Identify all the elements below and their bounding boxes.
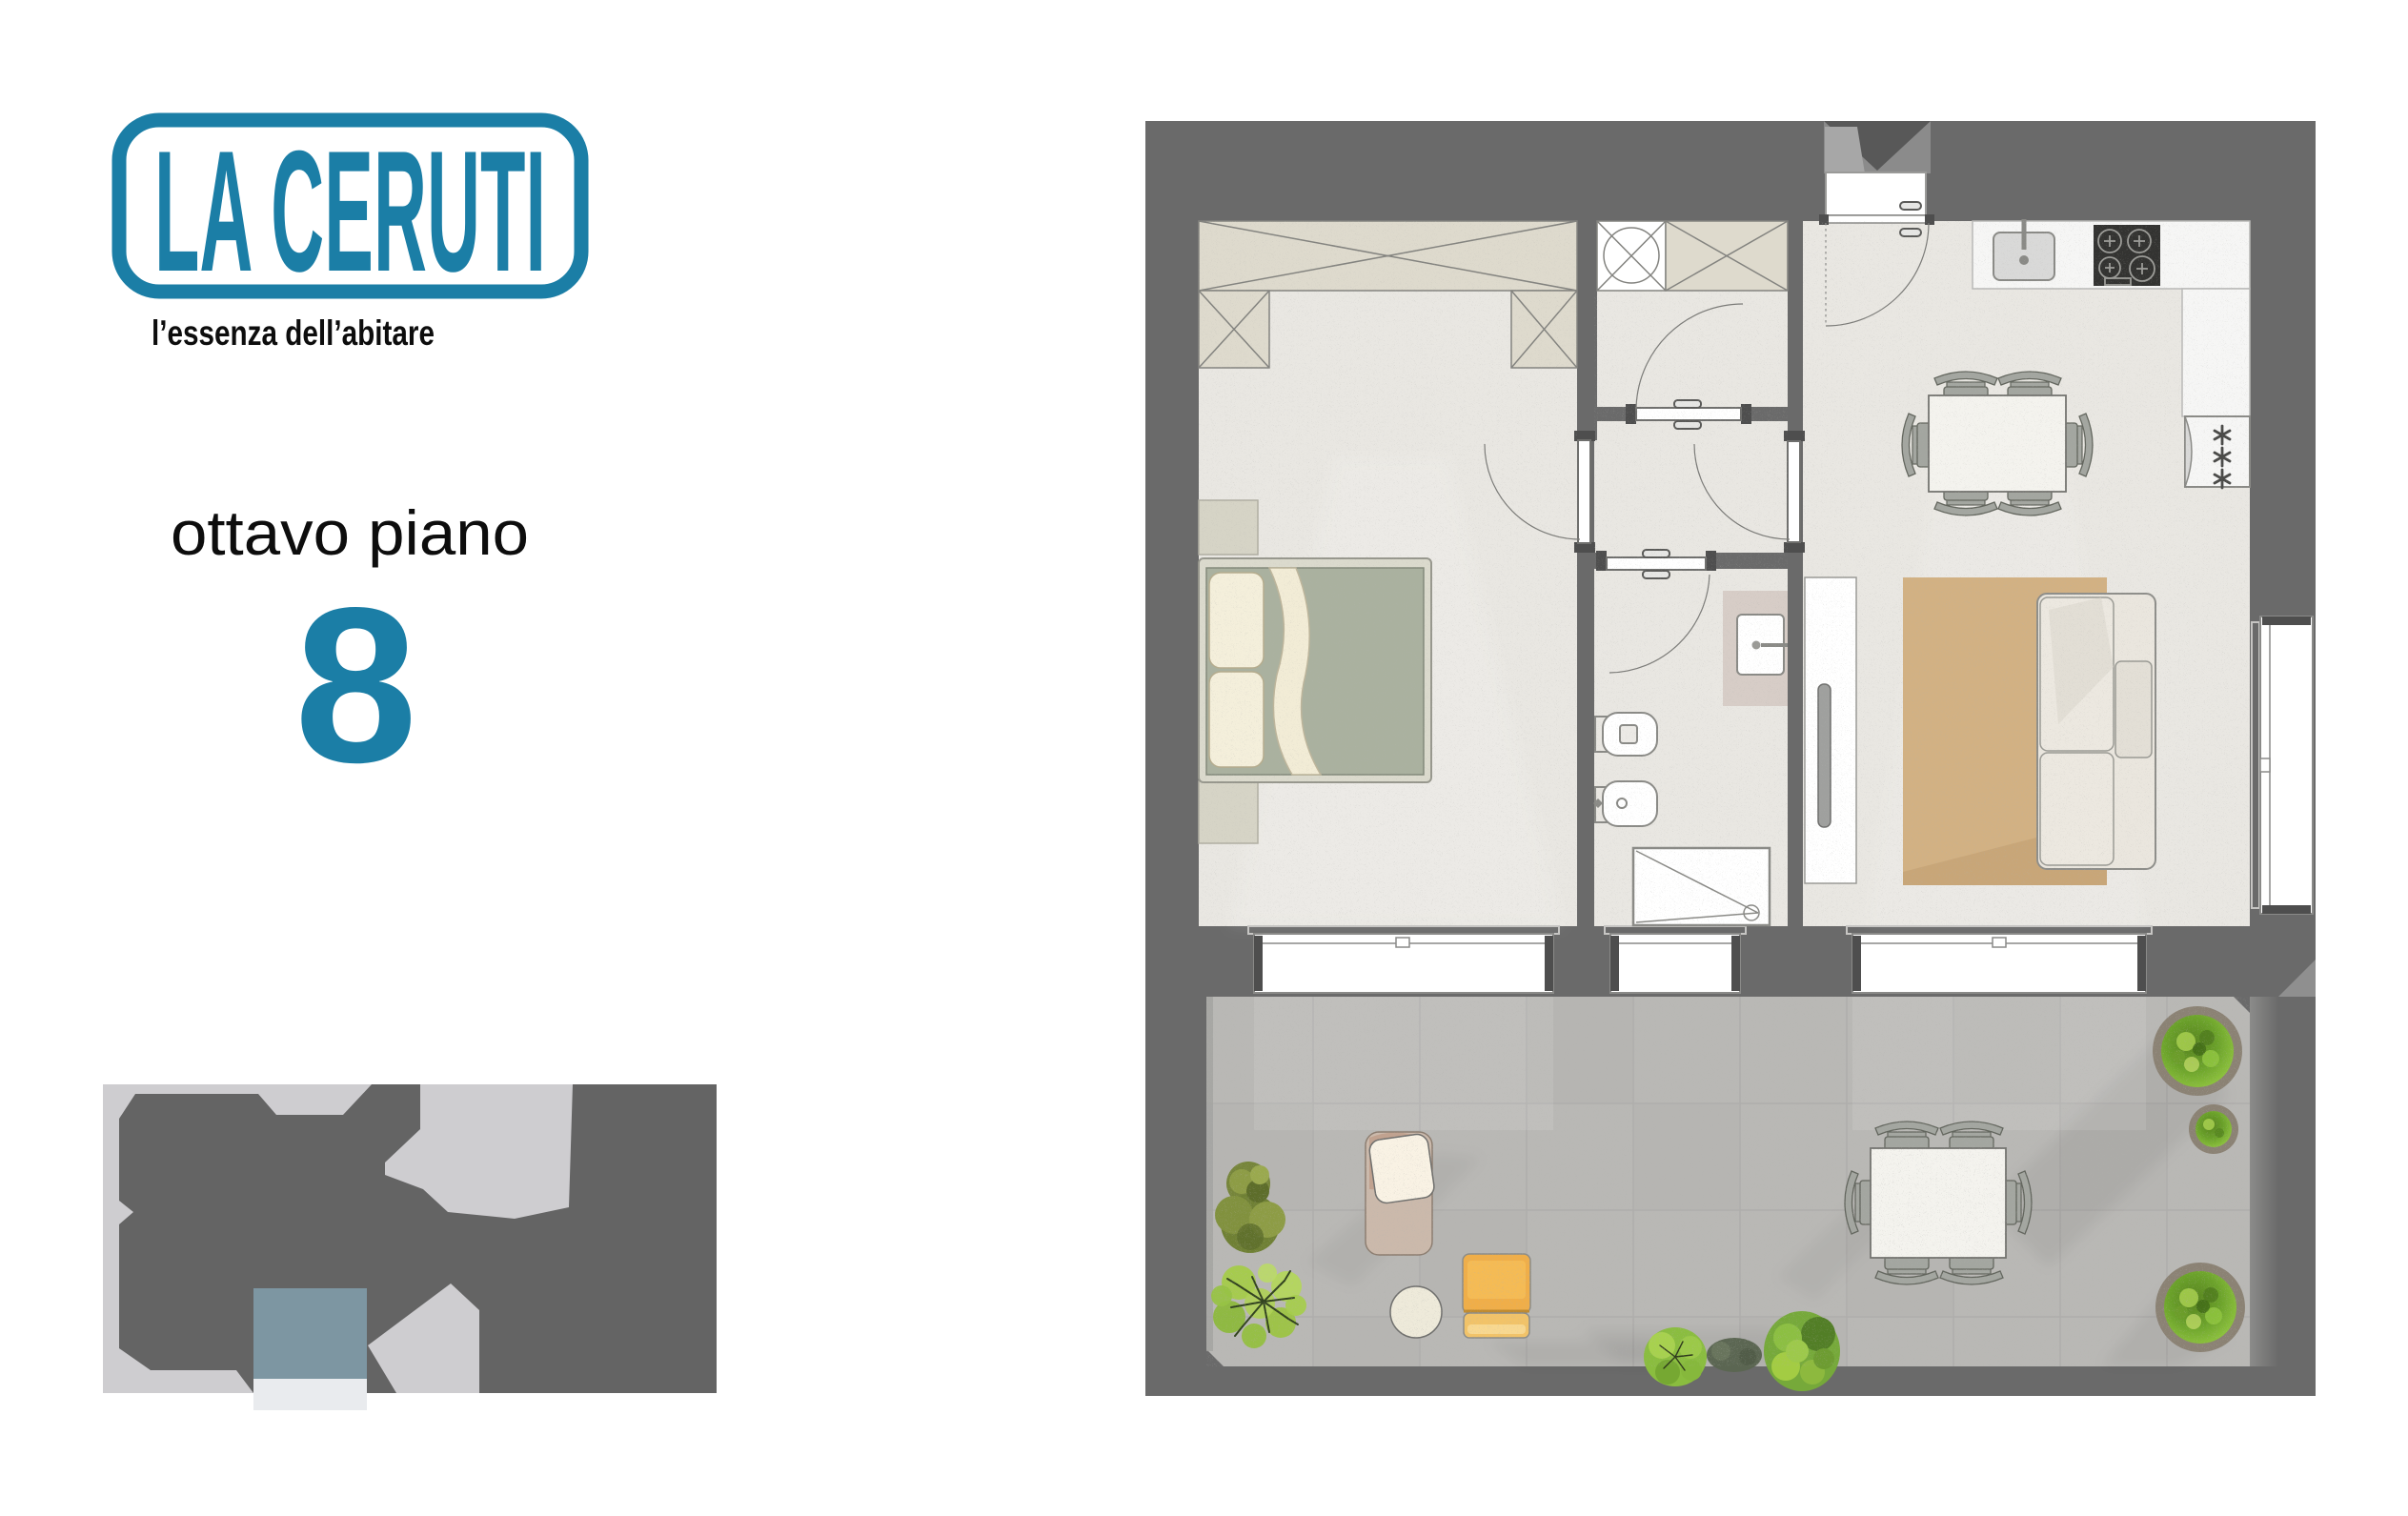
svg-text:LA CERUTI: LA CERUTI xyxy=(154,115,546,308)
svg-text:l’essenza dell’abitare: l’essenza dell’abitare xyxy=(152,313,435,353)
svg-text:ottavo piano: ottavo piano xyxy=(171,497,529,568)
svg-text:8: 8 xyxy=(294,562,417,809)
